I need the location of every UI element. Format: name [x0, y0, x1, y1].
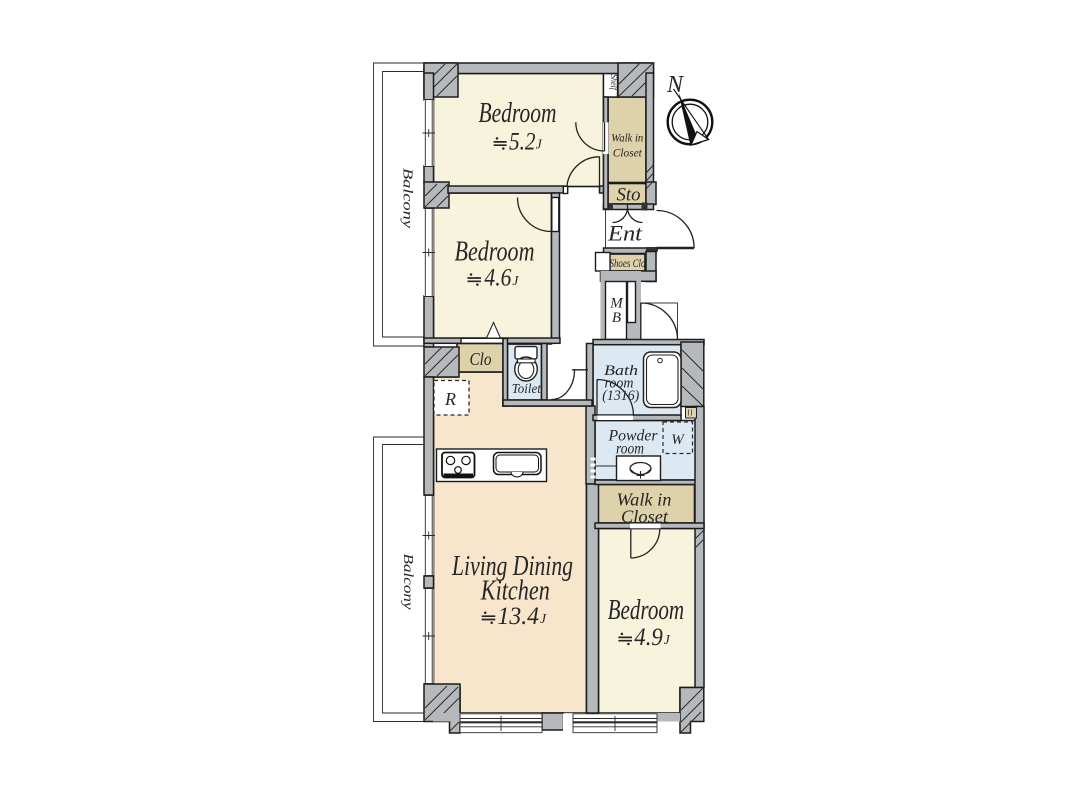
svg-text:J: J — [540, 611, 547, 626]
svg-text:4.9: 4.9 — [634, 624, 663, 651]
svg-text:Closet: Closet — [613, 148, 643, 160]
svg-text:J: J — [512, 273, 519, 288]
svg-text:Shoes Clo: Shoes Clo — [610, 256, 646, 270]
svg-text:Clo: Clo — [470, 349, 492, 369]
svg-text:room: room — [616, 441, 644, 458]
svg-text:Toilet: Toilet — [512, 381, 542, 396]
svg-text:4.6: 4.6 — [484, 265, 511, 292]
svg-text:Balcony: Balcony — [400, 168, 415, 229]
svg-text:Closet: Closet — [621, 507, 669, 527]
svg-text:Bedroom: Bedroom — [455, 237, 535, 268]
svg-text:Walk in: Walk in — [611, 133, 643, 145]
svg-text:5.2: 5.2 — [509, 129, 536, 156]
svg-text:Bedroom: Bedroom — [479, 98, 557, 129]
svg-text:(1316): (1316) — [602, 388, 639, 404]
svg-text:Sto: Sto — [617, 185, 641, 206]
svg-text:J: J — [664, 632, 671, 647]
svg-text:J: J — [536, 137, 543, 152]
svg-text:Bedroom: Bedroom — [608, 595, 685, 626]
svg-text:Ent: Ent — [607, 221, 643, 246]
svg-text:Balcony: Balcony — [401, 554, 416, 610]
svg-text:W: W — [671, 432, 685, 448]
svg-text:N: N — [666, 72, 685, 98]
svg-text:13.4: 13.4 — [498, 603, 540, 630]
svg-text:B: B — [612, 310, 621, 326]
svg-text:R: R — [444, 389, 456, 409]
